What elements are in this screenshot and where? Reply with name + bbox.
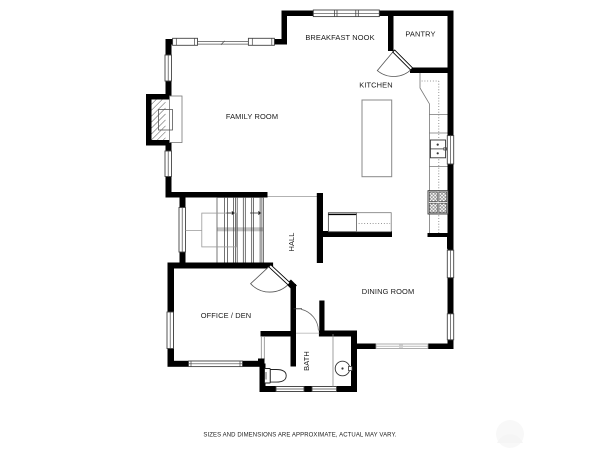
svg-text:HALL: HALL: [287, 232, 296, 251]
svg-text:FAMILY ROOM: FAMILY ROOM: [226, 112, 278, 121]
svg-text:PANTRY: PANTRY: [405, 30, 435, 39]
svg-text:OFFICE / DEN: OFFICE / DEN: [201, 311, 252, 320]
svg-text:KITCHEN: KITCHEN: [359, 81, 392, 90]
svg-text:BATH: BATH: [302, 351, 311, 371]
svg-text:SIZES AND DIMENSIONS ARE APPRO: SIZES AND DIMENSIONS ARE APPROXIMATE, AC…: [203, 433, 396, 439]
svg-text:DINING ROOM: DINING ROOM: [362, 287, 415, 296]
svg-text:BREAKFAST NOOK: BREAKFAST NOOK: [305, 33, 374, 42]
